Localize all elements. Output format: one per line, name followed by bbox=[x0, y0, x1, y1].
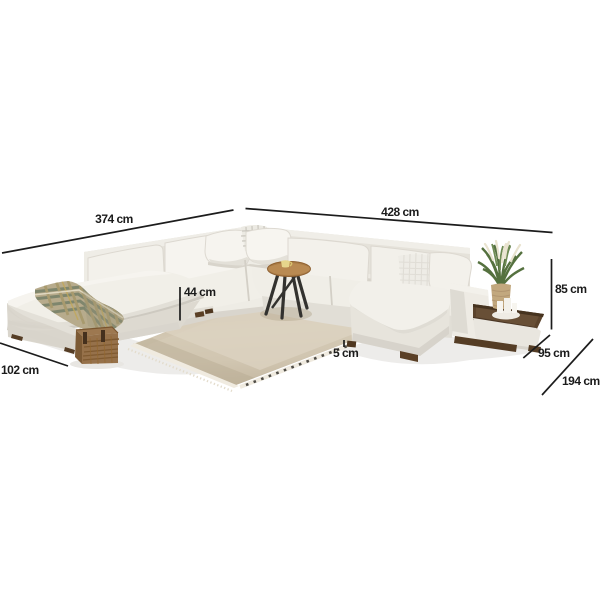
svg-text:428 cm: 428 cm bbox=[381, 205, 419, 219]
svg-text:374 cm: 374 cm bbox=[95, 212, 133, 226]
svg-text:194 cm: 194 cm bbox=[562, 374, 600, 388]
svg-text:102 cm: 102 cm bbox=[1, 363, 39, 377]
svg-text:95 cm: 95 cm bbox=[538, 346, 570, 360]
svg-text:44 cm: 44 cm bbox=[184, 285, 216, 299]
svg-text:85 cm: 85 cm bbox=[555, 282, 587, 296]
svg-text:5 cm: 5 cm bbox=[333, 346, 358, 360]
